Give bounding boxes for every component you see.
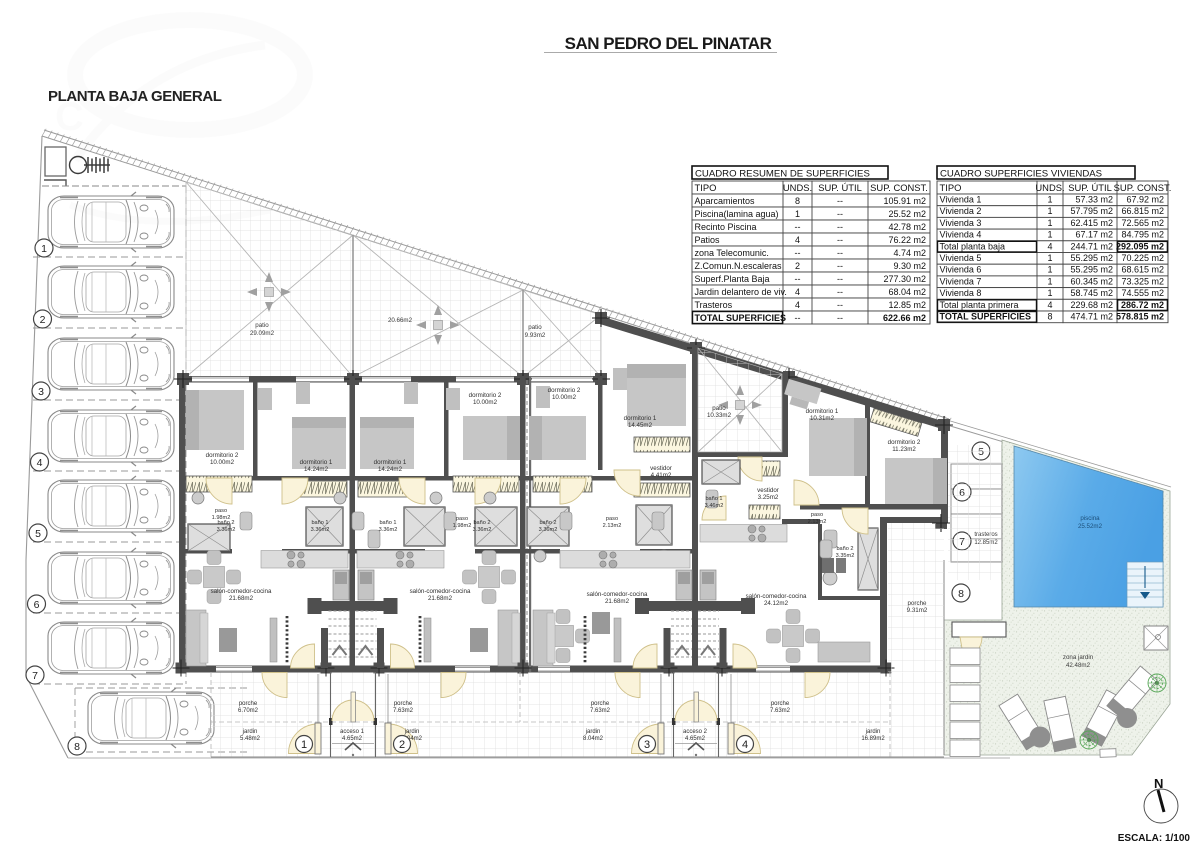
svg-text:salón-comedor-cocina: salón-comedor-cocina — [410, 588, 471, 595]
svg-text:patio: patio — [528, 324, 542, 331]
svg-text:--: -- — [837, 287, 843, 297]
svg-text:jardin: jardin — [865, 729, 881, 735]
svg-text:67.92 m2: 67.92 m2 — [1126, 195, 1164, 205]
svg-text:dormitorio 2: dormitorio 2 — [469, 392, 502, 399]
svg-text:8.04m2: 8.04m2 — [583, 736, 604, 742]
svg-text:patio: patio — [255, 322, 269, 329]
svg-text:20.66m2: 20.66m2 — [388, 317, 413, 324]
svg-text:7.63m2: 7.63m2 — [590, 708, 611, 714]
svg-text:Vivienda 4: Vivienda 4 — [940, 230, 982, 240]
svg-text:4: 4 — [1047, 300, 1052, 310]
svg-text:--: -- — [837, 222, 843, 232]
svg-text:acceso 1: acceso 1 — [340, 729, 365, 735]
svg-text:--: -- — [837, 196, 843, 206]
svg-text:1: 1 — [1047, 195, 1052, 205]
svg-text:paso: paso — [215, 508, 227, 514]
svg-text:25.52m2: 25.52m2 — [1078, 523, 1103, 530]
svg-text:16.89m2: 16.89m2 — [861, 736, 885, 742]
svg-text:11.23m2: 11.23m2 — [892, 446, 916, 453]
svg-text:57.795 m2: 57.795 m2 — [1070, 206, 1113, 216]
svg-text:2: 2 — [795, 261, 800, 271]
svg-text:3.36m2: 3.36m2 — [379, 527, 398, 533]
svg-text:10.00m2: 10.00m2 — [473, 399, 498, 406]
svg-text:baño 2: baño 2 — [473, 520, 490, 526]
svg-text:42.48m2: 42.48m2 — [1066, 662, 1091, 669]
svg-text:60.345 m2: 60.345 m2 — [1070, 276, 1113, 286]
svg-text:3.36m2: 3.36m2 — [539, 527, 558, 533]
svg-text:7.63m2: 7.63m2 — [770, 708, 791, 714]
svg-text:1.98m2: 1.98m2 — [212, 515, 231, 521]
svg-text:Aparcamientos: Aparcamientos — [695, 196, 756, 206]
svg-text:Piscina(lamina agua): Piscina(lamina agua) — [695, 209, 779, 219]
svg-text:dormitorio 1: dormitorio 1 — [624, 415, 657, 422]
svg-text:2.13m2: 2.13m2 — [603, 523, 622, 529]
svg-text:68.615 m2: 68.615 m2 — [1121, 265, 1164, 275]
svg-text:ESCALA: 1/100: ESCALA: 1/100 — [1118, 833, 1191, 844]
svg-text:286.72 m2: 286.72 m2 — [1121, 300, 1164, 310]
svg-text:piscina: piscina — [1080, 515, 1100, 522]
svg-text:3.36m2: 3.36m2 — [217, 527, 236, 533]
svg-text:6.70m2: 6.70m2 — [238, 708, 259, 714]
svg-text:Vivienda 1: Vivienda 1 — [940, 195, 982, 205]
svg-text:84.795 m2: 84.795 m2 — [1121, 230, 1164, 240]
svg-text:SAN PEDRO DEL PINATAR: SAN PEDRO DEL PINATAR — [565, 34, 772, 53]
svg-text:14.24m2: 14.24m2 — [378, 466, 403, 473]
svg-text:dormitorio 2: dormitorio 2 — [548, 387, 581, 394]
svg-text:2.13m2: 2.13m2 — [808, 519, 827, 525]
svg-text:SUP. CONST.: SUP. CONST. — [1114, 182, 1172, 193]
svg-text:70.225 m2: 70.225 m2 — [1121, 253, 1164, 263]
svg-text:zona Telecomunic.: zona Telecomunic. — [695, 248, 769, 258]
svg-text:TOTAL SUPERFICIES: TOTAL SUPERFICIES — [940, 312, 1032, 322]
svg-text:3.25m2: 3.25m2 — [758, 494, 779, 501]
svg-text:--: -- — [837, 300, 843, 310]
svg-text:dormitorio 1: dormitorio 1 — [374, 459, 407, 466]
svg-text:jardin: jardin — [585, 729, 601, 735]
svg-text:4: 4 — [37, 457, 43, 469]
svg-text:acceso 2: acceso 2 — [683, 729, 708, 735]
svg-text:salón-comedor-cocina: salón-comedor-cocina — [587, 591, 648, 598]
svg-text:58.745 m2: 58.745 m2 — [1070, 288, 1113, 298]
svg-text:21.68m2: 21.68m2 — [229, 595, 254, 602]
svg-text:1: 1 — [1047, 218, 1052, 228]
svg-text:24.12m2: 24.12m2 — [764, 600, 789, 607]
svg-text:57.33 m2: 57.33 m2 — [1075, 195, 1113, 205]
svg-text:paso: paso — [456, 516, 468, 522]
svg-text:578.815 m2: 578.815 m2 — [1116, 312, 1164, 322]
svg-text:10.31m2: 10.31m2 — [810, 415, 835, 422]
svg-text:6: 6 — [34, 599, 40, 611]
svg-text:N: N — [1154, 776, 1163, 791]
svg-text:SUP. CONST.: SUP. CONST. — [870, 182, 928, 193]
svg-text:1: 1 — [795, 209, 800, 219]
svg-text:paso: paso — [606, 516, 618, 522]
svg-text:zona jardin: zona jardin — [1063, 654, 1094, 661]
svg-text:1: 1 — [1047, 276, 1052, 286]
svg-text:--: -- — [837, 261, 843, 271]
svg-text:Total planta primera: Total planta primera — [940, 300, 1019, 310]
svg-text:--: -- — [795, 313, 801, 323]
svg-text:2: 2 — [40, 314, 46, 326]
svg-text:--: -- — [837, 235, 843, 245]
svg-text:PLANTA BAJA GENERAL: PLANTA BAJA GENERAL — [48, 88, 222, 105]
svg-text:Vivienda 7: Vivienda 7 — [940, 276, 982, 286]
svg-text:salón-comedor-cocina: salón-comedor-cocina — [746, 593, 807, 600]
svg-text:dormitorio 2: dormitorio 2 — [888, 439, 921, 446]
svg-text:porche: porche — [239, 701, 258, 707]
svg-text:10.00m2: 10.00m2 — [210, 459, 235, 466]
svg-text:--: -- — [795, 248, 801, 258]
svg-text:porche: porche — [591, 701, 610, 707]
svg-text:4: 4 — [1047, 241, 1052, 251]
svg-text:72.565 m2: 72.565 m2 — [1121, 218, 1164, 228]
svg-text:67.17 m2: 67.17 m2 — [1075, 230, 1113, 240]
svg-text:5.48m2: 5.48m2 — [240, 736, 261, 742]
svg-text:Vivienda 8: Vivienda 8 — [940, 288, 982, 298]
svg-text:3: 3 — [38, 386, 44, 398]
svg-text:62.415 m2: 62.415 m2 — [1070, 218, 1113, 228]
svg-text:salón-comedor-cocina: salón-comedor-cocina — [211, 588, 272, 595]
svg-text:4.65m2: 4.65m2 — [342, 736, 363, 742]
svg-text:1: 1 — [1047, 288, 1052, 298]
svg-text:4: 4 — [795, 235, 800, 245]
svg-text:3: 3 — [644, 739, 650, 751]
svg-text:1: 1 — [1047, 253, 1052, 263]
svg-text:474.71 m2: 474.71 m2 — [1070, 312, 1113, 322]
svg-text:1: 1 — [301, 739, 307, 751]
svg-text:dormitorio 1: dormitorio 1 — [300, 459, 333, 466]
svg-text:9.30 m2: 9.30 m2 — [893, 261, 926, 271]
svg-text:8: 8 — [74, 741, 80, 753]
svg-text:vestidor: vestidor — [757, 487, 779, 494]
svg-text:21.68m2: 21.68m2 — [428, 595, 453, 602]
svg-text:12.85 m2: 12.85 m2 — [888, 300, 926, 310]
svg-text:9.93m2: 9.93m2 — [525, 332, 546, 339]
svg-text:1: 1 — [1047, 230, 1052, 240]
svg-text:55.295 m2: 55.295 m2 — [1070, 265, 1113, 275]
svg-text:vestidor: vestidor — [650, 465, 672, 472]
svg-text:3.36m2: 3.36m2 — [473, 527, 492, 533]
svg-text:4.41m2: 4.41m2 — [651, 472, 672, 479]
svg-text:Vivienda 6: Vivienda 6 — [940, 265, 982, 275]
svg-text:622.66 m2: 622.66 m2 — [883, 313, 926, 323]
svg-text:paso: paso — [811, 512, 823, 518]
svg-text:55.295 m2: 55.295 m2 — [1070, 253, 1113, 263]
svg-text:Trasteros: Trasteros — [695, 300, 733, 310]
svg-text:jardin: jardin — [404, 729, 420, 735]
svg-text:--: -- — [795, 274, 801, 284]
svg-text:SUP. ÚTIL: SUP. ÚTIL — [1068, 182, 1112, 193]
svg-text:TIPO: TIPO — [940, 182, 962, 193]
svg-text:74.555 m2: 74.555 m2 — [1121, 288, 1164, 298]
svg-text:porche: porche — [771, 701, 790, 707]
svg-text:baño 1: baño 1 — [311, 520, 328, 526]
svg-text:1: 1 — [41, 243, 47, 255]
svg-text:4: 4 — [742, 739, 748, 751]
svg-text:10.00m2: 10.00m2 — [552, 394, 577, 401]
svg-text:baño 2: baño 2 — [836, 546, 853, 552]
svg-text:4.74 m2: 4.74 m2 — [893, 248, 926, 258]
svg-text:7.63m2: 7.63m2 — [393, 708, 414, 714]
svg-text:Superf.Planta Baja: Superf.Planta Baja — [695, 274, 770, 284]
svg-text:4: 4 — [795, 300, 800, 310]
svg-text:--: -- — [837, 209, 843, 219]
svg-text:21.68m2: 21.68m2 — [605, 598, 630, 605]
svg-text:292.095 m2: 292.095 m2 — [1116, 241, 1164, 251]
svg-text:277.30 m2: 277.30 m2 — [883, 274, 926, 284]
svg-text:8: 8 — [1047, 312, 1052, 322]
svg-text:Vivienda 2: Vivienda 2 — [940, 206, 982, 216]
svg-text:8: 8 — [795, 196, 800, 206]
svg-text:3.46m2: 3.46m2 — [705, 503, 724, 509]
svg-text:1: 1 — [1047, 206, 1052, 216]
svg-text:5: 5 — [35, 528, 41, 540]
svg-text:porche: porche — [394, 701, 413, 707]
svg-text:73.325 m2: 73.325 m2 — [1121, 276, 1164, 286]
svg-text:68.04 m2: 68.04 m2 — [888, 287, 926, 297]
svg-text:229.68 m2: 229.68 m2 — [1070, 300, 1113, 310]
svg-text:42.78 m2: 42.78 m2 — [888, 222, 926, 232]
svg-text:jardin: jardin — [242, 729, 258, 735]
svg-text:76.22 m2: 76.22 m2 — [888, 235, 926, 245]
svg-text:TOTAL SUPERFICIES: TOTAL SUPERFICIES — [695, 313, 787, 323]
svg-text:patio: patio — [712, 405, 726, 412]
svg-text:7: 7 — [32, 670, 38, 682]
svg-text:66.815 m2: 66.815 m2 — [1121, 206, 1164, 216]
svg-text:1.98m2: 1.98m2 — [453, 523, 472, 529]
svg-text:Recinto Piscina: Recinto Piscina — [695, 222, 757, 232]
svg-text:Z.Comun.N.escaleras: Z.Comun.N.escaleras — [695, 261, 783, 271]
svg-text:Vivienda 5: Vivienda 5 — [940, 253, 982, 263]
svg-text:8: 8 — [958, 588, 964, 600]
svg-text:4: 4 — [795, 287, 800, 297]
svg-text:3.35m2: 3.35m2 — [836, 553, 855, 559]
svg-text:dormitorio 1: dormitorio 1 — [806, 408, 839, 415]
svg-text:baño 2: baño 2 — [539, 520, 556, 526]
svg-text:baño 1: baño 1 — [705, 496, 722, 502]
svg-text:Patios: Patios — [695, 235, 721, 245]
svg-text:SUP. ÚTIL: SUP. ÚTIL — [818, 182, 862, 193]
svg-text:1: 1 — [1047, 265, 1052, 275]
svg-text:baño 1: baño 1 — [379, 520, 396, 526]
svg-text:CUADRO RESUMEN DE SUPERFICIES: CUADRO RESUMEN DE SUPERFICIES — [695, 169, 870, 180]
svg-text:29.09m2: 29.09m2 — [250, 330, 275, 337]
svg-text:--: -- — [795, 222, 801, 232]
svg-text:CUADRO SUPERFICIES VIVIENDAS: CUADRO SUPERFICIES VIVIENDAS — [940, 169, 1102, 180]
svg-text:105.91 m2: 105.91 m2 — [883, 196, 926, 206]
svg-text:dormitorio 2: dormitorio 2 — [206, 452, 239, 459]
svg-text:--: -- — [837, 313, 843, 323]
svg-text:Total planta baja: Total planta baja — [940, 241, 1006, 251]
svg-text:10.33m2: 10.33m2 — [707, 412, 732, 419]
svg-text:--: -- — [837, 248, 843, 258]
svg-text:Jardin delantero de viv.: Jardin delantero de viv. — [695, 287, 787, 297]
svg-text:TIPO: TIPO — [695, 182, 717, 193]
svg-text:Vivienda 3: Vivienda 3 — [940, 218, 982, 228]
svg-text:25.52 m2: 25.52 m2 — [888, 209, 926, 219]
svg-text:2: 2 — [399, 739, 405, 751]
svg-text:3.36m2: 3.36m2 — [311, 527, 330, 533]
svg-text:244.71 m2: 244.71 m2 — [1070, 241, 1113, 251]
svg-text:4.65m2: 4.65m2 — [685, 736, 706, 742]
svg-text:14.24m2: 14.24m2 — [304, 466, 329, 473]
svg-text:14.45m2: 14.45m2 — [628, 422, 653, 429]
svg-text:UNDS.: UNDS. — [783, 182, 812, 193]
svg-text:--: -- — [837, 274, 843, 284]
svg-text:UNDS.: UNDS. — [1035, 182, 1064, 193]
